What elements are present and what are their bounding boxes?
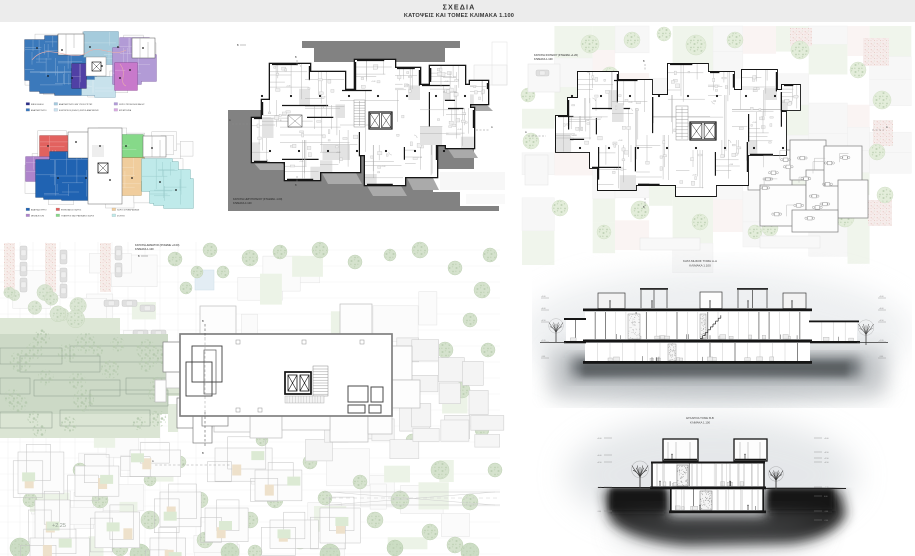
svg-text:+1.48: +1.48 [336, 152, 340, 154]
svg-text:Α: Α [491, 125, 493, 129]
svg-text:+1.48: +1.48 [572, 135, 576, 137]
svg-text:ΕΡΓΑΣΤΗΡΙΑ: ΕΡΓΑΣΤΗΡΙΑ [119, 109, 132, 112]
svg-text:ΑΝΑΓΝΩΣΤΗΡΙΟ: ΑΝΑΓΝΩΣΤΗΡΙΟ [31, 109, 47, 112]
svg-text:Α: Α [229, 118, 231, 122]
svg-text:Β: Β [202, 451, 204, 455]
svg-text:ΚΛΙΜΑΚΑ 1:100: ΚΛΙΜΑΚΑ 1:100 [233, 201, 252, 205]
svg-text:ΥΠΑΙΘΡΙΟΙ ΚΑΙ ΓΡΑΦΕΙΑΚΟΙ ΧΩΡΟΙ: ΥΠΑΙΘΡΙΟΙ ΚΑΙ ΓΡΑΦΕΙΑΚΟΙ ΧΩΡΟΙ [61, 214, 95, 217]
svg-text:ΚΛΙΜΑΚΑ 1.100: ΚΛΙΜΑΚΑ 1.100 [689, 264, 711, 268]
svg-text:ΕΞΩΤΕΡΙΚΟΙ (ΨΗΛΟΙ) ΧΩΡΟΙ ΑΝΑΓΝ: ΕΞΩΤΕΡΙΚΟΙ (ΨΗΛΟΙ) ΧΩΡΟΙ ΑΝΑΓΝΩΣΗΣ [59, 109, 99, 112]
svg-text:+1.48: +1.48 [628, 102, 632, 104]
svg-text:+1.20: +1.20 [597, 487, 602, 489]
svg-text:+6.00: +6.00 [541, 308, 546, 310]
svg-text:ΙΣΟΓΕΙΟ: ΙΣΟΓΕΙΟ [117, 215, 125, 217]
svg-text:+1.48: +1.48 [299, 161, 303, 163]
svg-text:+1.48: +1.48 [418, 157, 422, 159]
svg-text:ΚΑΤΑ ΜΗΚΟΣ ΤΟΜΗ Α-Α: ΚΑΤΑ ΜΗΚΟΣ ΤΟΜΗ Α-Α [683, 259, 717, 263]
svg-text:ΚΑΤΟΨΗ ΔΩΜΑΤΟΣ (ΣΤΑΘΜΗ +6.00): ΚΑΤΟΨΗ ΔΩΜΑΤΟΣ (ΣΤΑΘΜΗ +6.00) [135, 243, 180, 247]
svg-text:ΕΚΘΕΣΙΑΚΟΣ ΧΩΡΟΣ: ΕΚΘΕΣΙΑΚΟΣ ΧΩΡΟΣ [61, 208, 82, 211]
svg-text:ΚΛΙΜΑΚΑ 1.100: ΚΛΙΜΑΚΑ 1.100 [534, 57, 553, 61]
svg-text:ΚΛΙΜΑΚΑ 1.100: ΚΛΙΜΑΚΑ 1.100 [135, 247, 154, 251]
svg-text:ΑΝΑΓΝΩΣΤΗΡΙΟ ΜΕ ΥΠΟΛΟΓΙΣΤΕΣ: ΑΝΑΓΝΩΣΤΗΡΙΟ ΜΕ ΥΠΟΛΟΓΙΣΤΕΣ [59, 103, 93, 106]
svg-text:+9.00: +9.00 [597, 438, 602, 440]
svg-text:-1.00: -1.00 [597, 511, 601, 513]
svg-text:ΕΓΚΑΡΣΙΑ ΤΟΜΗ Β-Β: ΕΓΚΑΡΣΙΑ ΤΟΜΗ Β-Β [686, 416, 714, 420]
svg-text:-1.00: -1.00 [541, 356, 545, 358]
svg-text:+4.50: +4.50 [541, 320, 546, 322]
svg-text:+1.48: +1.48 [371, 81, 375, 83]
svg-text:+4.50: +4.50 [597, 462, 602, 464]
svg-text:+2.25: +2.25 [52, 523, 66, 529]
svg-text:Α: Α [525, 130, 527, 134]
svg-text:ΧΩΡΟΙ ΣΥΝΕΔΡΙΑΣΕΩΝ: ΧΩΡΟΙ ΣΥΝΕΔΡΙΑΣΕΩΝ [117, 208, 140, 211]
svg-text:ΧΩΡΟΙ ΠΡΟΒΟΛΩΝ ΚΑΙ HP: ΧΩΡΟΙ ΠΡΟΒΟΛΩΝ ΚΑΙ HP [119, 103, 145, 106]
svg-text:0.00: 0.00 [824, 496, 828, 498]
svg-text:+6.50: +6.50 [824, 452, 829, 454]
svg-text:-2.00: -2.00 [824, 520, 828, 522]
svg-text:ΚΑΤΟΨΗ ΗΜΙΥΠΟΓΕΙΟΥ (ΣΤΑΘΜΗ -1.: ΚΑΤΟΨΗ ΗΜΙΥΠΟΓΕΙΟΥ (ΣΤΑΘΜΗ -1.00) [233, 197, 282, 201]
svg-text:ΒΙΒΛΙΟΘΗΚΗ: ΒΙΒΛΙΟΘΗΚΗ [31, 104, 44, 106]
svg-text:+4.50: +4.50 [879, 320, 884, 322]
svg-text:Α: Α [152, 459, 154, 463]
svg-text:+1.48: +1.48 [286, 86, 290, 88]
svg-text:-1.00: -1.00 [824, 511, 828, 513]
svg-text:+9.00: +9.00 [879, 296, 884, 298]
svg-text:+5.50: +5.50 [824, 458, 829, 460]
svg-text:Α: Α [886, 125, 888, 129]
svg-text:+1.48: +1.48 [457, 129, 461, 131]
svg-text:+1.20: +1.20 [541, 340, 546, 342]
svg-text:+1.48: +1.48 [613, 169, 617, 171]
svg-text:+1.48: +1.48 [381, 166, 385, 168]
svg-text:ΚΑΤΟΨΗ ΙΣΟΓΕΙΟΥ (ΣΤΑΘΜΗ +1.20): ΚΑΤΟΨΗ ΙΣΟΓΕΙΟΥ (ΣΤΑΘΜΗ +1.20) [534, 53, 578, 57]
svg-text:+1.48: +1.48 [321, 96, 325, 98]
svg-text:+6.00: +6.00 [879, 308, 884, 310]
svg-text:MEDIA ROOM: MEDIA ROOM [31, 214, 44, 217]
svg-text:+1.48: +1.48 [692, 174, 696, 176]
svg-text:+1.48: +1.48 [585, 120, 589, 122]
svg-text:Β: Β [202, 319, 204, 323]
svg-text:+9.00: +9.00 [541, 296, 546, 298]
svg-text:+1.48: +1.48 [444, 81, 448, 83]
svg-text:ΚΑΤΟΨΕΙΣ ΚΑΙ ΤΟΜΕΣ ΚΛΙΜΑΚΑ 1.1: ΚΑΤΟΨΕΙΣ ΚΑΙ ΤΟΜΕΣ ΚΛΙΜΑΚΑ 1.100 [404, 13, 514, 19]
svg-text:+1.20: +1.20 [824, 487, 829, 489]
svg-text:+1.48: +1.48 [752, 122, 756, 124]
svg-text:+9.00: +9.00 [824, 438, 829, 440]
svg-text:+1.48: +1.48 [405, 85, 409, 87]
svg-text:+1.20: +1.20 [879, 340, 884, 342]
svg-text:+1.48: +1.48 [729, 164, 733, 166]
svg-text:-1.00: -1.00 [879, 356, 883, 358]
svg-text:+4.50: +4.50 [824, 462, 829, 464]
svg-text:ΚΛΙΜΑΚΑ 1.100: ΚΛΙΜΑΚΑ 1.100 [690, 421, 711, 425]
svg-text:+6.00: +6.00 [597, 455, 602, 457]
svg-text:+1.48: +1.48 [618, 140, 622, 142]
svg-text:ΣΧΕΔΙΑ: ΣΧΕΔΙΑ [443, 2, 476, 11]
svg-text:ΑΝΑΓΝΩΣΤΗΡΙΟ: ΑΝΑΓΝΩΣΤΗΡΙΟ [31, 208, 47, 211]
